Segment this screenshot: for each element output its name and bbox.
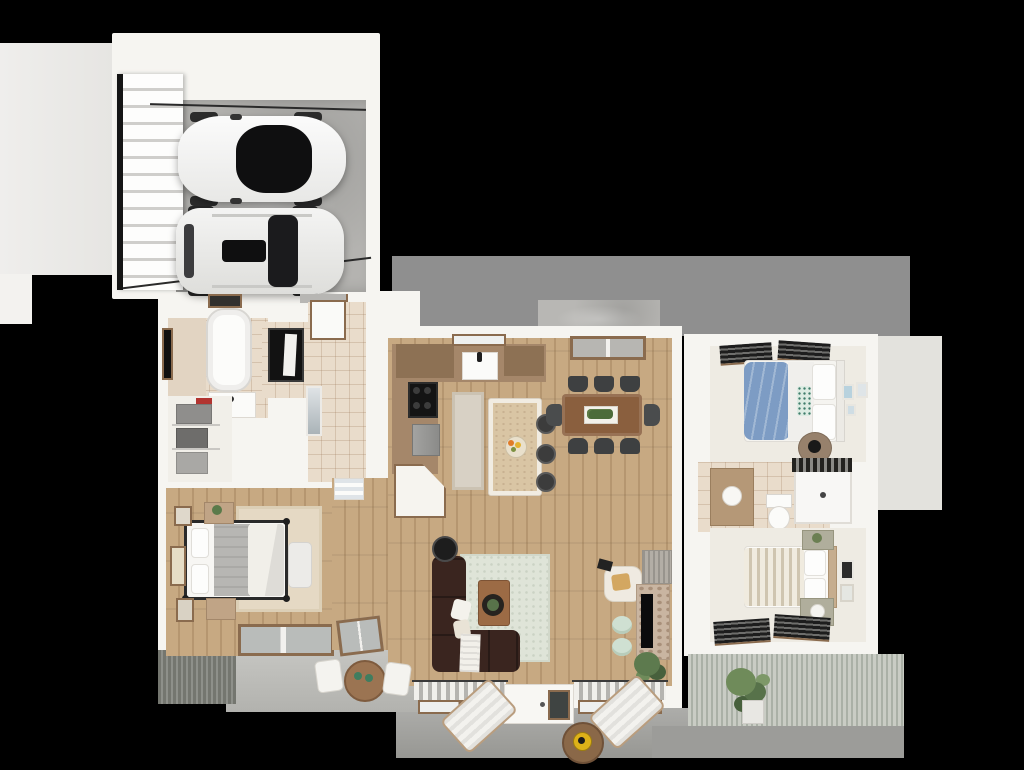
sedan-mirror: [230, 198, 242, 204]
bed2-pillow: [812, 364, 836, 400]
record-player: [432, 536, 458, 562]
mudroom-mirror: [306, 386, 322, 436]
dining-chair: [594, 438, 614, 454]
kitchen-upper-cabinet: [396, 344, 454, 378]
dining-chair: [568, 376, 588, 392]
small-wall-window: [208, 294, 242, 308]
bed3-pillow: [804, 550, 826, 576]
suv-roof-rail: [212, 214, 312, 217]
right-siding-band: [688, 654, 904, 728]
closet-basket: [176, 404, 212, 424]
bed-duvet-gray: [214, 524, 250, 596]
bathtub: [206, 308, 252, 392]
fruit-green: [511, 447, 516, 452]
patio-chair: [314, 658, 344, 693]
wall-art: [170, 546, 186, 586]
bed2-blue-duvet: [744, 362, 790, 440]
stove-burner: [424, 387, 431, 394]
car-suv: [172, 206, 348, 296]
tv-screen: [641, 594, 653, 648]
suv-rear-glass: [184, 224, 194, 278]
right-front-apron: [652, 726, 904, 758]
plant-pot: [742, 700, 764, 724]
patio-chair: [382, 661, 412, 696]
nightstand-plant-small: [812, 533, 822, 543]
bed2-pattern-pillow: [797, 386, 811, 416]
sink-faucet: [477, 352, 482, 362]
bed3-striped-duvet: [744, 548, 804, 606]
bathroom1-window: [162, 328, 173, 380]
dining-set: [546, 374, 660, 460]
green-cup: [354, 672, 362, 680]
garage-side-wall-plane: [0, 43, 114, 275]
vanity2-sink: [722, 486, 742, 506]
accent-chair-pillow: [611, 573, 631, 591]
mint-pouf: [612, 638, 632, 656]
bed-pillow: [191, 528, 209, 558]
door-knob: [540, 702, 545, 707]
patio-french-door: [336, 615, 384, 656]
door-glass: [548, 690, 570, 720]
bed-post: [283, 518, 290, 525]
garage-side-wall-foot: [0, 274, 32, 324]
master-window: [238, 624, 334, 656]
yellow-bowl-center: [578, 737, 585, 744]
stove-burner: [413, 402, 420, 409]
kitchen-island: [488, 398, 542, 496]
wall-art: [174, 506, 192, 526]
wall-art-light: [840, 584, 854, 602]
ribbed-media-cabinet: [642, 550, 672, 584]
floor-plan-scene: [0, 0, 1024, 770]
dining-chair: [620, 376, 640, 392]
suv-roof-rail: [212, 285, 312, 288]
throw-blanket: [459, 634, 480, 673]
wall-art-blue: [856, 382, 868, 398]
linen-shelves: [334, 478, 364, 500]
left-siding-strip: [158, 650, 236, 704]
dining-chair: [594, 376, 614, 392]
wall-art: [176, 598, 194, 622]
sedan-glass-roof: [236, 125, 312, 193]
wall-art-blue: [842, 384, 854, 400]
kitchen-upper-cabinet: [504, 346, 544, 376]
dining-chair: [644, 404, 660, 426]
closet-basket: [176, 452, 208, 474]
master-nightstand: [206, 598, 236, 620]
bed-pillow: [191, 564, 209, 594]
master-bench: [288, 542, 312, 588]
wall-art-dark: [840, 560, 854, 580]
suv-windshield: [268, 215, 298, 287]
shower2-drain: [820, 492, 826, 498]
fruit-orange: [508, 440, 514, 446]
dining-chair: [568, 438, 588, 454]
planter-greens: [587, 409, 613, 419]
coffee-table-plant: [487, 599, 499, 611]
right-side-pad: [872, 336, 942, 510]
shower2-curtain: [792, 458, 852, 472]
window-over-sink: [452, 334, 506, 346]
bed2-headboard: [836, 360, 845, 442]
outdoor-potted-plant: [726, 668, 756, 696]
mudroom-cabinet: [310, 300, 346, 340]
dining-chair: [620, 438, 640, 454]
fruit-yellow: [515, 442, 521, 448]
sofa-pillow: [450, 598, 472, 622]
closet-shelf-edge: [172, 448, 220, 450]
toilet-bowl: [768, 506, 790, 530]
suv-sunroof: [222, 240, 266, 262]
closet-basket: [176, 428, 208, 450]
dining-chair: [546, 404, 562, 426]
fireplace: [636, 584, 670, 658]
master-bed: [184, 520, 288, 600]
bedroom2-bed: [744, 360, 846, 442]
wall-art-blue: [846, 404, 856, 416]
patio-round-table: [344, 660, 386, 702]
bedroom3-blinds: [713, 618, 771, 646]
island-stool: [536, 472, 556, 492]
range-stove: [408, 382, 438, 418]
indoor-plant: [634, 652, 660, 676]
nightstand-plant: [212, 505, 222, 515]
dining-rear-window: [570, 336, 646, 360]
mint-pouf: [612, 616, 632, 634]
stove-burner: [424, 402, 431, 409]
bedroom3-blinds: [773, 614, 831, 642]
kitchen-runner-rug: [452, 392, 484, 490]
green-cup: [365, 674, 373, 682]
dishwasher: [412, 424, 440, 456]
sedan-mirror: [230, 114, 242, 120]
closet-shelf-edge: [172, 424, 220, 426]
shower-towel: [283, 334, 297, 377]
car-sedan: [176, 112, 348, 206]
bed-post: [283, 595, 290, 602]
nightstand-record: [808, 440, 821, 453]
bed-comforter-white: [248, 524, 284, 596]
stove-burner: [413, 387, 420, 394]
